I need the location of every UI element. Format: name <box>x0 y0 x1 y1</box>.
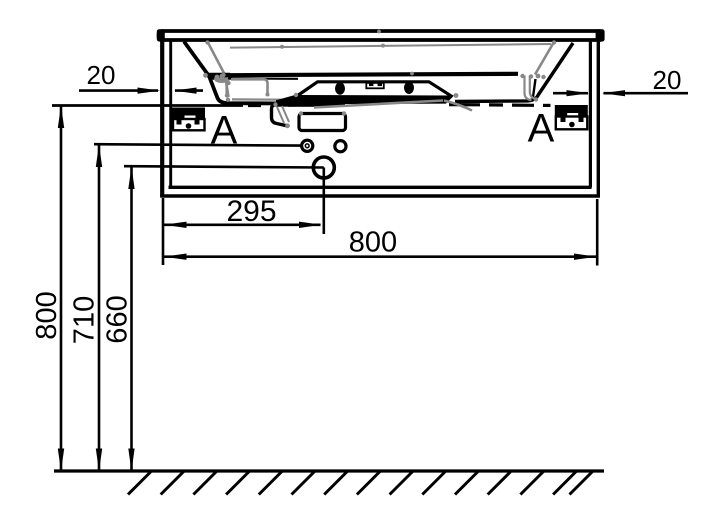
svg-text:800: 800 <box>349 227 397 259</box>
svg-text:20: 20 <box>87 60 116 90</box>
svg-text:800: 800 <box>31 291 63 339</box>
svg-text:710: 710 <box>69 296 101 344</box>
svg-text:20: 20 <box>653 65 682 95</box>
svg-text:A: A <box>528 107 555 151</box>
svg-text:295: 295 <box>226 195 276 228</box>
svg-text:660: 660 <box>102 295 134 343</box>
